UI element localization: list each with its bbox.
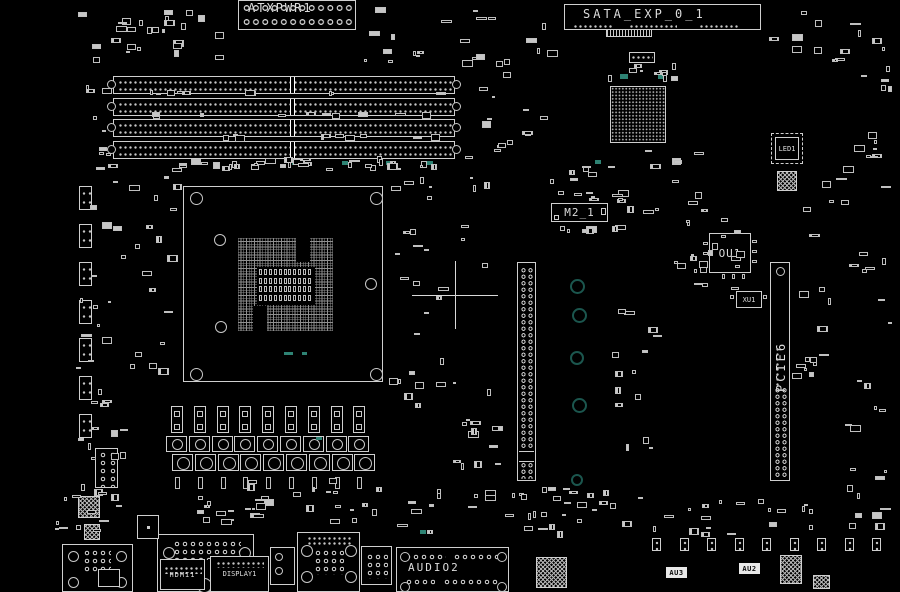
passive-component: [369, 31, 380, 36]
chip-pin: [752, 240, 757, 243]
passive-component: [537, 48, 540, 54]
fet-pad: [200, 457, 213, 470]
passive-component: [558, 191, 564, 195]
passive-component: [488, 17, 496, 20]
passive-component: [888, 322, 892, 324]
passive-component: [76, 367, 81, 369]
port-hole: [163, 547, 175, 559]
passive-component: [78, 12, 87, 17]
passive-component: [404, 181, 414, 185]
passive-component: [866, 155, 871, 158]
passive-component: [76, 525, 81, 530]
vrm-choke: [353, 406, 365, 433]
header-pads: [81, 265, 91, 285]
connector-m2-1: M2_1: [551, 203, 608, 222]
passive-component: [108, 164, 118, 168]
passive-component: [280, 164, 286, 168]
passive-component: [687, 222, 690, 226]
passive-component: [801, 11, 807, 15]
passive-component: [156, 93, 161, 95]
audio-pads: [453, 553, 503, 562]
passive-component: [686, 220, 690, 223]
passive-component: [413, 245, 423, 247]
teal-test-pad: [316, 437, 322, 440]
passive-component: [861, 75, 867, 77]
passive-component: [735, 265, 740, 268]
socket-capacitor: [259, 269, 262, 275]
socket-capacitor: [264, 269, 267, 275]
choke-pad: [174, 424, 180, 430]
choke-pad: [288, 424, 294, 430]
passive-component: [56, 521, 59, 525]
connector-sata-exp-label: SATA_EXP_0_1: [583, 7, 706, 21]
passive-component: [99, 520, 109, 522]
passive-component: [496, 61, 503, 67]
passive-component: [91, 401, 98, 404]
connector-display1-label: DISPLAY1: [211, 557, 268, 591]
passive-component: [234, 164, 240, 169]
passive-component: [557, 531, 563, 538]
passive-component: [427, 196, 432, 200]
passive-component: [872, 38, 882, 44]
passive-component: [335, 505, 341, 508]
passive-component: [147, 27, 152, 34]
vrm-choke: [331, 406, 343, 433]
passive-component: [437, 493, 441, 499]
passive-component: [102, 130, 106, 132]
passive-component: [376, 487, 382, 492]
passive-component: [350, 509, 354, 511]
socket-capacitor: [274, 295, 277, 301]
passive-component: [671, 76, 678, 81]
passive-component: [591, 196, 595, 198]
jumper-header: [762, 538, 771, 551]
passive-component: [881, 79, 889, 82]
passive-component: [431, 134, 440, 141]
passive-component: [436, 296, 442, 300]
passive-component: [436, 92, 446, 95]
passive-component: [479, 87, 488, 91]
passive-component: [453, 460, 461, 463]
dimm-pads: [118, 130, 452, 135]
passive-component: [88, 360, 94, 362]
passive-component: [884, 470, 887, 473]
passive-component: [139, 20, 143, 26]
passive-component: [387, 163, 398, 170]
passive-component: [81, 484, 85, 491]
passive-component: [805, 357, 810, 362]
vrm-resistor: [357, 477, 362, 489]
choke-pad: [220, 411, 226, 417]
passive-component: [335, 134, 344, 138]
passive-component: [677, 263, 686, 269]
passive-component: [345, 135, 355, 141]
passive-component: [191, 159, 201, 165]
passive-component: [815, 20, 822, 27]
passive-component: [466, 419, 470, 421]
vrm-choke: [262, 406, 274, 433]
passive-component: [882, 47, 885, 51]
passive-component: [465, 156, 473, 159]
passive-component: [198, 15, 205, 22]
choke-pad: [334, 411, 340, 417]
passive-component: [360, 134, 367, 138]
chip-pin: [752, 250, 757, 253]
vrm-fet: [309, 454, 330, 471]
passive-component: [701, 516, 711, 520]
jumper-pads: [792, 540, 798, 550]
connector-m2-1-label: M2_1: [552, 204, 607, 221]
passive-component: [375, 7, 386, 13]
passive-component: [245, 508, 251, 510]
passive-component: [881, 85, 886, 91]
passive-component: [701, 532, 710, 537]
passive-component: [615, 387, 621, 394]
passive-component: [389, 378, 398, 385]
dimm-slot: [113, 119, 455, 137]
passive-component: [306, 112, 316, 116]
connector-atxpwr1-label: ATXPWR1: [248, 1, 313, 15]
header-pads: [81, 303, 91, 323]
slot-hole: [776, 267, 785, 276]
passive-component: [111, 453, 119, 460]
passive-component: [438, 287, 449, 291]
passive-component: [388, 60, 393, 63]
socket-corner-hole: [370, 192, 383, 205]
vrm-choke: [285, 406, 297, 433]
passive-component: [792, 373, 802, 379]
passive-component: [522, 131, 533, 135]
passive-component: [233, 134, 238, 136]
passive-component: [708, 250, 713, 256]
socket-capacitor: [308, 295, 311, 301]
passive-component: [93, 529, 101, 532]
choke-pad: [197, 411, 203, 417]
choke-pad: [334, 424, 340, 430]
connector-hdmi1-label: HDMI1: [161, 560, 204, 589]
passive-component: [706, 527, 711, 529]
passive-component: [819, 287, 825, 292]
tag-au2: AU2: [739, 563, 760, 574]
passive-component: [93, 57, 100, 63]
vrm-fet: [189, 436, 210, 452]
passive-component: [533, 511, 536, 518]
connector-display1: DISPLAY1: [210, 556, 269, 592]
passive-component: [849, 264, 859, 267]
dimm-key-notch: [290, 142, 295, 158]
header-pads: [81, 417, 91, 437]
passive-component: [364, 59, 367, 62]
passive-component: [664, 515, 674, 518]
jack-hole: [116, 551, 127, 562]
passive-component: [648, 327, 658, 333]
passive-component: [689, 528, 699, 535]
passive-component: [489, 445, 498, 448]
passive-component: [695, 192, 702, 199]
passive-component: [674, 160, 682, 164]
teal-plated-hole: [572, 398, 587, 413]
jumper-pads: [737, 540, 743, 550]
fet-pad: [268, 457, 281, 470]
passive-component: [701, 209, 708, 212]
vrm-fet: [212, 436, 233, 452]
passive-component: [495, 463, 501, 465]
passive-component: [868, 132, 877, 139]
passive-component: [569, 170, 575, 175]
dimm-pads: [118, 123, 452, 128]
passive-component: [577, 502, 587, 508]
passive-component: [326, 168, 333, 171]
passive-component: [582, 166, 591, 168]
passive-component: [414, 333, 420, 335]
passive-component: [792, 34, 803, 41]
passive-component: [152, 112, 160, 117]
passive-component: [672, 63, 676, 70]
passive-component: [255, 499, 264, 501]
passive-component: [874, 406, 877, 410]
port-pads: [366, 553, 388, 579]
passive-component: [91, 427, 99, 430]
passive-component: [857, 493, 860, 499]
dimm-latch-hole: [452, 80, 461, 89]
socket-capacitor: [284, 295, 287, 301]
socket-capacitor: [269, 295, 272, 301]
passive-component: [424, 312, 429, 314]
passive-component: [111, 38, 121, 43]
passive-component: [882, 258, 886, 265]
socket-capacitor: [298, 286, 301, 292]
passive-component: [472, 57, 477, 60]
passive-component: [78, 438, 84, 441]
passive-component: [712, 243, 718, 250]
passive-component: [507, 140, 513, 145]
teal-plated-hole: [570, 351, 584, 365]
port-hole: [345, 571, 357, 583]
passive-component: [80, 298, 83, 303]
passive-component: [158, 368, 169, 375]
passive-component: [817, 326, 828, 332]
passive-component: [197, 510, 204, 514]
jumper-pads: [709, 540, 715, 550]
chip-pin: [732, 274, 735, 279]
vrm-choke: [171, 406, 183, 433]
vrm-fet: [195, 454, 216, 471]
passive-component: [461, 463, 464, 470]
passive-component: [873, 148, 877, 150]
fet-pad: [359, 457, 372, 470]
vrm-resistor: [175, 477, 180, 489]
passive-component: [650, 164, 661, 169]
passive-component: [492, 96, 495, 98]
passive-component: [113, 226, 122, 231]
passive-component: [654, 72, 662, 75]
passive-component: [702, 504, 709, 508]
socket-capacitor: [284, 278, 287, 284]
passive-component: [499, 426, 503, 431]
passive-component: [333, 491, 338, 494]
passive-component: [106, 153, 111, 156]
passive-component: [96, 167, 105, 170]
passive-component: [156, 236, 162, 243]
passive-component: [149, 288, 156, 292]
passive-component: [485, 495, 496, 501]
passive-component: [702, 283, 708, 287]
socket-corner-hole: [190, 368, 203, 381]
port-hole: [345, 545, 357, 557]
small-port: [270, 547, 295, 585]
passive-component: [482, 121, 491, 128]
passive-component: [829, 200, 834, 203]
passive-component: [622, 521, 632, 527]
passive-component: [505, 514, 514, 517]
passive-component: [461, 238, 465, 241]
passive-component: [487, 389, 491, 396]
passive-component: [587, 493, 594, 498]
passive-component: [850, 468, 856, 471]
passive-component: [471, 428, 477, 435]
jumper-pads: [819, 540, 825, 550]
passive-component: [247, 484, 255, 491]
passive-component: [462, 422, 467, 426]
passive-component: [329, 478, 337, 484]
passive-component: [855, 513, 862, 518]
passive-component: [453, 382, 456, 384]
passive-component: [97, 324, 100, 327]
vrm-fet: [348, 436, 369, 452]
passive-component: [482, 263, 488, 268]
passive-component: [116, 26, 127, 32]
passive-component: [874, 140, 877, 144]
passive-component: [629, 68, 637, 73]
socket-capacitor: [288, 269, 291, 275]
passive-component: [468, 506, 477, 508]
passive-component: [135, 244, 140, 249]
passive-component: [615, 371, 623, 377]
passive-component: [321, 134, 331, 138]
passive-component: [102, 222, 112, 229]
passive-component: [769, 522, 777, 527]
fet-pad: [354, 439, 365, 450]
passive-component: [164, 311, 173, 313]
passive-component: [699, 261, 708, 268]
passive-component: [608, 75, 612, 82]
socket-capacitor: [279, 295, 282, 301]
tag-au3: AU3: [666, 567, 687, 578]
passive-component: [635, 394, 641, 400]
jack-sub: [98, 569, 120, 587]
passive-component: [809, 234, 820, 237]
qfn-chip: [777, 171, 797, 191]
teal-plated-hole: [571, 474, 583, 486]
passive-component: [828, 298, 831, 305]
choke-pad: [311, 411, 317, 417]
passive-component: [886, 66, 890, 72]
passive-component: [181, 23, 186, 30]
usb-port-block: [297, 532, 360, 592]
passive-component: [116, 505, 122, 507]
socket-capacitor: [298, 269, 301, 275]
passive-component: [164, 10, 173, 15]
passive-component: [476, 17, 487, 20]
passive-component: [879, 409, 886, 412]
passive-component: [391, 186, 401, 191]
passive-component: [569, 491, 578, 494]
jumper-pads: [654, 540, 660, 550]
passive-component: [854, 145, 865, 152]
passive-component: [180, 164, 186, 166]
fet-pad: [314, 457, 327, 470]
socket-capacitor: [264, 278, 267, 284]
passive-component: [93, 116, 97, 120]
vrm-fet: [354, 454, 375, 471]
passive-component: [165, 16, 169, 21]
chip-led1: LED1: [775, 137, 799, 160]
passive-component: [549, 524, 555, 530]
pin-header: [79, 376, 92, 400]
pin-header: [79, 414, 92, 438]
passive-component: [126, 51, 130, 53]
passive-component: [416, 55, 420, 57]
fet-pad: [286, 439, 297, 450]
vrm-fet: [257, 436, 278, 452]
passive-component: [127, 44, 136, 50]
dimm-latch-hole: [452, 123, 461, 132]
passive-component: [362, 503, 368, 507]
slot-key: [519, 451, 534, 462]
passive-component: [164, 176, 169, 179]
passive-component: [429, 186, 432, 188]
passive-component: [758, 499, 764, 504]
pin-header: [79, 338, 92, 362]
chip-pin: [742, 274, 745, 279]
jumper-header: [680, 538, 689, 551]
passive-component: [415, 382, 424, 389]
passive-component: [768, 508, 771, 512]
passive-component: [528, 513, 531, 520]
passive-component: [473, 185, 476, 192]
passive-component: [523, 109, 529, 111]
socket-capacitor: [288, 286, 291, 292]
passive-component: [612, 194, 623, 197]
passive-component: [422, 112, 431, 119]
passive-component: [769, 37, 772, 39]
passive-component: [858, 30, 861, 37]
passive-component: [332, 113, 340, 119]
passive-component: [792, 46, 802, 53]
passive-component: [98, 492, 107, 495]
passive-component: [577, 519, 582, 523]
port-hole: [275, 553, 283, 561]
passive-component: [721, 218, 728, 222]
passive-component: [487, 118, 492, 120]
passive-component: [173, 43, 182, 49]
socket-capacitor: [303, 295, 306, 301]
passive-component: [836, 178, 847, 180]
audio-hole: [497, 582, 507, 592]
passive-component: [256, 503, 266, 510]
passive-component: [850, 425, 861, 432]
passive-component: [632, 370, 636, 374]
passive-component: [640, 70, 643, 72]
passive-component: [326, 491, 331, 493]
chip-pin: [722, 274, 725, 279]
small-ic: [137, 515, 159, 539]
passive-component: [802, 506, 805, 512]
socket-corner-hole: [190, 192, 203, 205]
passive-component: [547, 50, 558, 57]
passive-component: [484, 182, 490, 189]
vrm-choke: [194, 406, 206, 433]
